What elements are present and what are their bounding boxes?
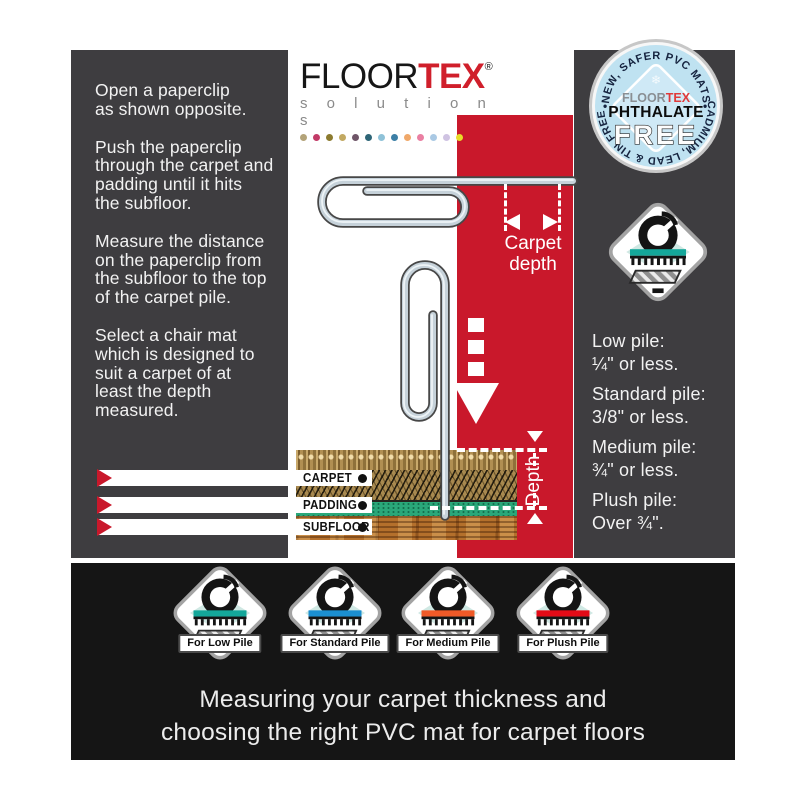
logo-dot	[404, 134, 411, 141]
pile-item: Plush pile: Over ¾".	[592, 489, 732, 535]
mat-icon: For Standard Pile	[282, 560, 388, 666]
logo-dot	[365, 134, 372, 141]
instruction-paragraph: Measure the distance on the paperclip fr…	[95, 232, 288, 307]
logo-dot	[443, 134, 450, 141]
subfloor-hatch	[630, 271, 680, 283]
label-bar-subfloor: SUBFLOOR	[98, 519, 372, 535]
mat-icon: For Medium Pile	[395, 560, 501, 666]
pile-color-band	[630, 249, 686, 256]
right-arrow-icon	[543, 214, 558, 230]
mat-icon: For Plush Pile	[510, 560, 616, 666]
floortex-logo: FLOORTEX® s o l u t i o n s	[300, 50, 495, 141]
instruction-paragraph: Select a chair mat which is designed to …	[95, 326, 288, 420]
down-arrow-dash	[468, 340, 484, 354]
carpet-pile-texture	[296, 450, 517, 471]
mat-base	[537, 617, 590, 620]
depth-arrow-up-icon	[527, 513, 543, 524]
red-arrow-icon	[97, 518, 112, 536]
pile-name: Low pile:	[592, 330, 732, 353]
mat-base	[630, 256, 686, 259]
down-arrow-dash	[468, 362, 484, 376]
pile-spec: ¾" or less.	[592, 459, 732, 482]
mat-icon: For Low Pile	[167, 560, 273, 666]
logo-dot	[326, 134, 333, 141]
pile-color-band	[194, 610, 247, 616]
mat-gripper-teeth	[195, 619, 246, 625]
registered-mark-icon: ®	[485, 61, 493, 73]
mat-gripper-teeth	[423, 619, 474, 625]
layer-label: PADDING	[303, 498, 357, 512]
pointer-dot	[358, 474, 367, 483]
logo-dot	[378, 134, 385, 141]
badge-brand: FLOORTEX	[622, 91, 691, 105]
logo-tex: TEX	[418, 57, 485, 96]
logo-dot	[352, 134, 359, 141]
pile-spec: Over ¾".	[592, 512, 732, 535]
instruction-paragraph: Push the paperclip through the carpet an…	[95, 138, 288, 213]
pointer-dot	[358, 501, 367, 510]
label-bar-padding: PADDING	[98, 497, 372, 513]
pile-color-band	[537, 610, 590, 616]
mat-base	[422, 617, 475, 620]
mat-diamond-icon	[602, 196, 714, 308]
mat-gripper-teeth	[631, 259, 685, 266]
depth-arrow-down-icon	[527, 431, 543, 442]
mat-icon	[602, 196, 714, 308]
logo-wordmark: FLOORTEX®	[300, 50, 495, 94]
pile-color-band	[422, 610, 475, 616]
layer-label: CARPET	[303, 471, 352, 485]
red-arrow-icon	[97, 469, 112, 487]
left-arrow-icon	[505, 214, 520, 230]
carpet-depth-dash-right	[558, 184, 561, 231]
logo-dot	[430, 134, 437, 141]
mat-gripper-teeth	[538, 619, 589, 625]
logo-dot	[313, 134, 320, 141]
caption-line2: choosing the right PVC mat for carpet fl…	[71, 716, 735, 749]
logo-dot	[300, 134, 307, 141]
pile-spec: 3/8" or less.	[592, 406, 732, 429]
pile-icon-label: For Low Pile	[178, 634, 261, 653]
pile-guide: Low pile: ¼" or less. Standard pile: 3/8…	[592, 330, 732, 542]
mat-base	[309, 617, 362, 620]
pile-icons-row: For Low Pile For Standard Pile	[71, 560, 735, 670]
carpet-depth-label: Carpet depth	[494, 233, 572, 275]
pile-item: Low pile: ¼" or less.	[592, 330, 732, 376]
pile-color-band	[309, 610, 362, 616]
pointer-dot	[358, 523, 367, 532]
depth-label: Depth	[523, 455, 545, 507]
logo-dots	[300, 134, 495, 141]
logo-dot	[417, 134, 424, 141]
logo-dot	[391, 134, 398, 141]
logo-floor: FLOOR	[300, 57, 418, 96]
pile-name: Standard pile:	[592, 383, 732, 406]
bottom-tab	[652, 288, 663, 293]
down-arrow-dash	[468, 318, 484, 332]
pile-icon-label: For Standard Pile	[280, 634, 389, 653]
caption-line1: Measuring your carpet thickness and	[71, 683, 735, 716]
pile-item: Standard pile: 3/8" or less.	[592, 383, 732, 429]
pile-name: Medium pile:	[592, 436, 732, 459]
depth-dash-top	[457, 448, 547, 452]
logo-dot	[456, 134, 463, 141]
down-arrow-icon	[453, 383, 499, 424]
instruction-paragraph: Open a paperclip as shown opposite.	[95, 81, 288, 119]
badge-free-label: FREE	[614, 120, 698, 150]
badge-phthalate-label: PHTHALATE	[608, 104, 703, 121]
pile-icon-label: For Medium Pile	[397, 634, 500, 653]
phthalate-free-badge: NEW, SAFER PVC MATS CADMIUM, LEAD & TIN …	[586, 36, 726, 176]
logo-dot	[339, 134, 346, 141]
red-arrow-icon	[97, 496, 112, 514]
label-bar-carpet: CARPET	[98, 470, 372, 486]
right-icon-slot	[602, 196, 714, 308]
mat-gripper-teeth	[310, 619, 361, 625]
snowflake-icon: ❄	[651, 73, 661, 87]
badge-separator-dot: •	[603, 99, 607, 113]
infographic-page: Open a paperclip as shown opposite. Push…	[0, 0, 800, 800]
logo-subtitle: s o l u t i o n s	[300, 95, 495, 129]
pile-icon-label: For Plush Pile	[517, 634, 608, 653]
pile-item: Medium pile: ¾" or less.	[592, 436, 732, 482]
pile-spec: ¼" or less.	[592, 353, 732, 376]
pile-name: Plush pile:	[592, 489, 732, 512]
mat-base	[194, 617, 247, 620]
caption: Measuring your carpet thickness and choo…	[71, 683, 735, 749]
